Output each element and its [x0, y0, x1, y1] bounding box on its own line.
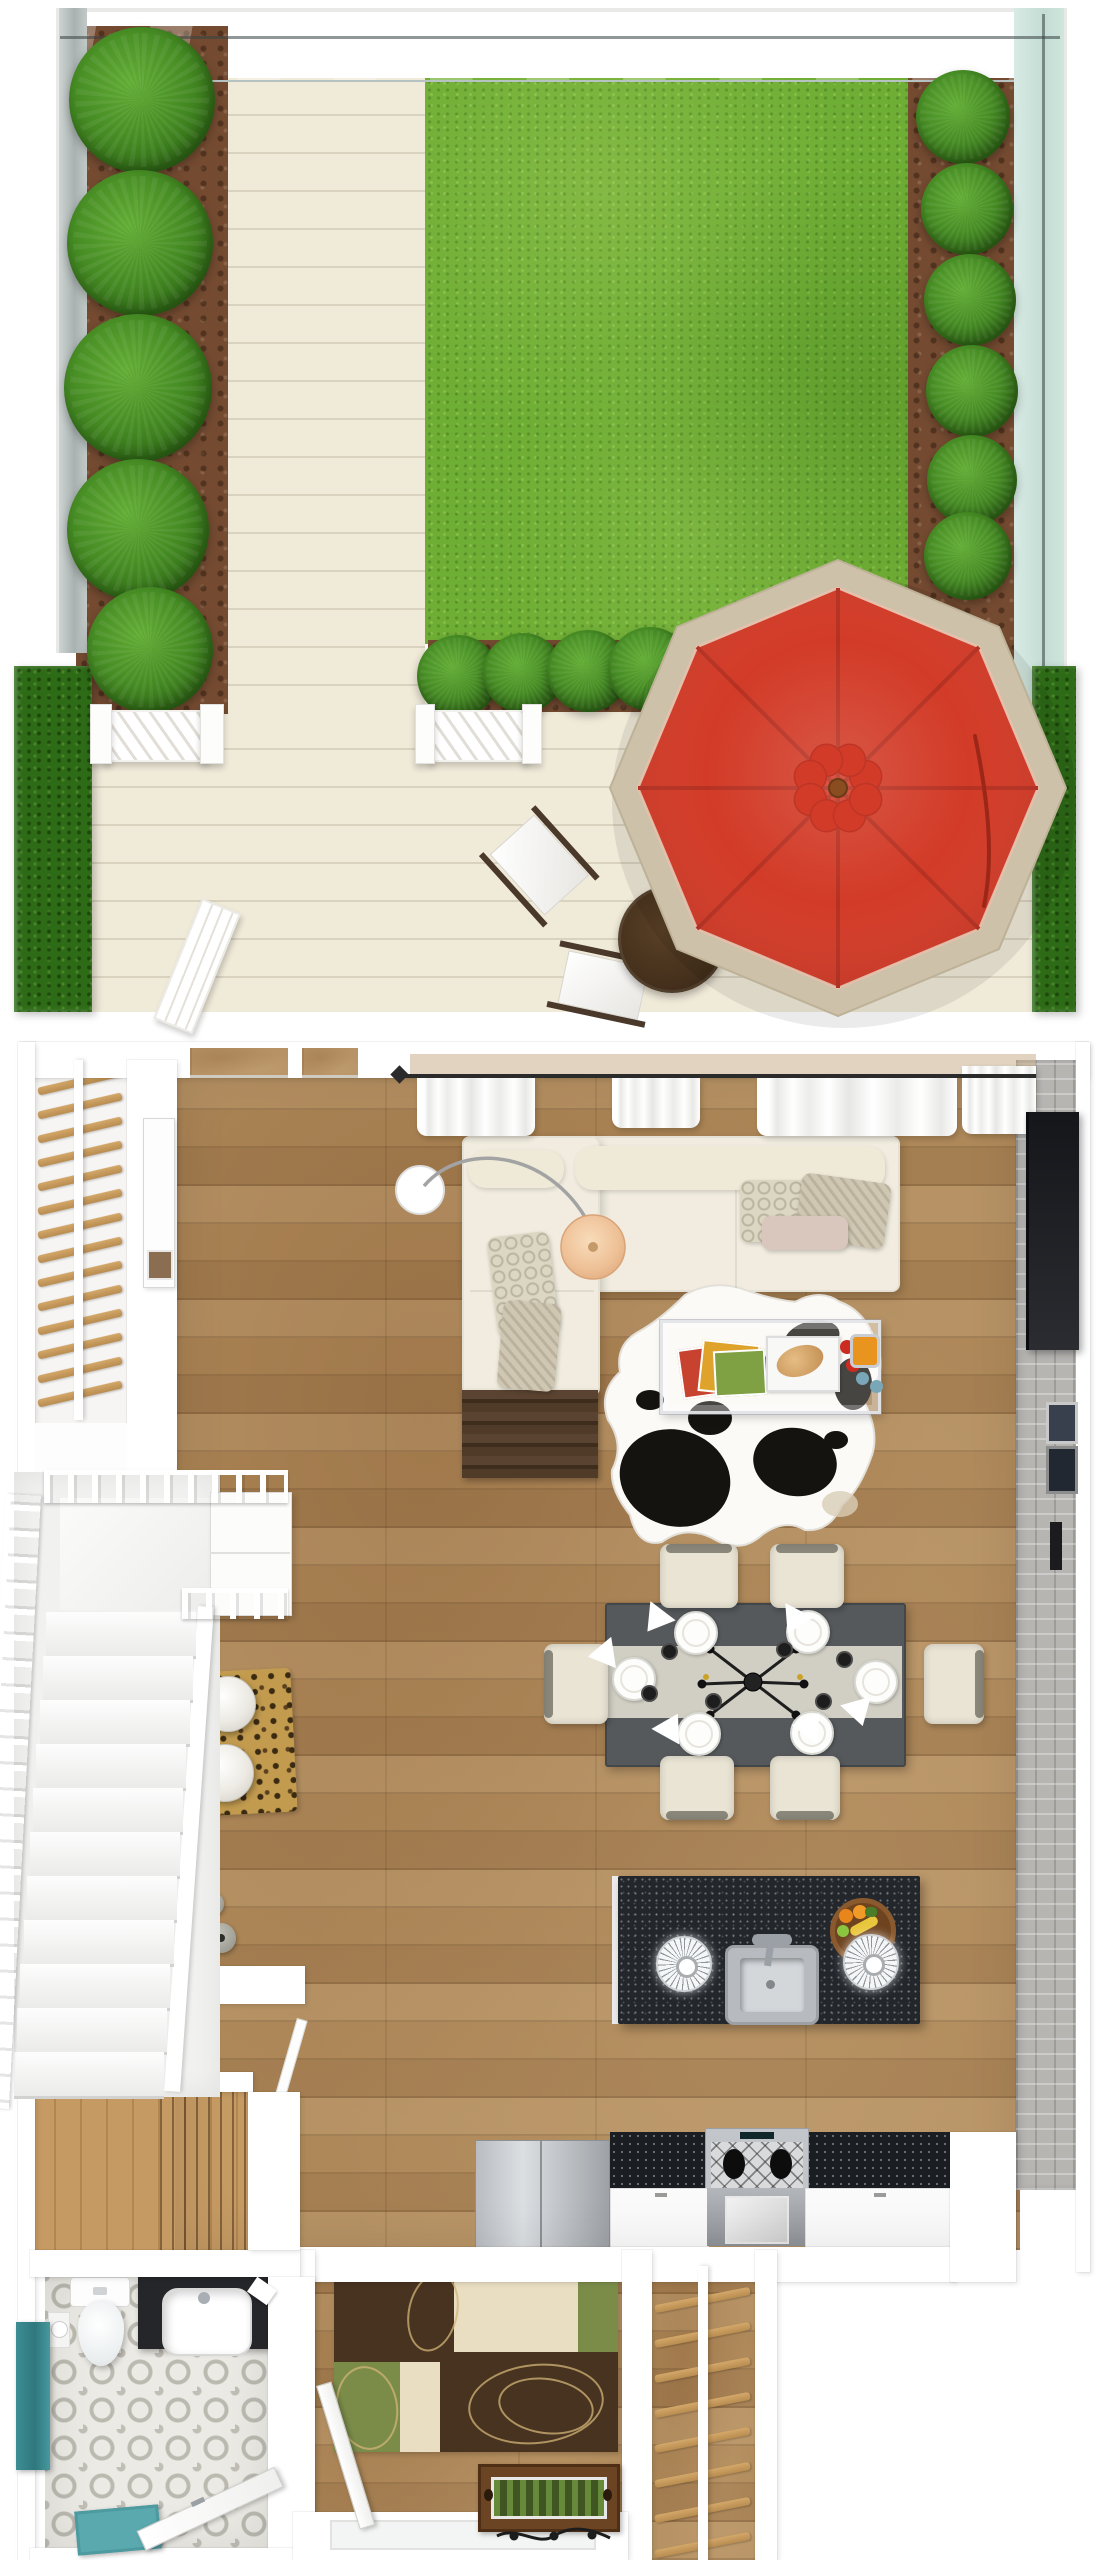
- dinner-plate: [674, 1611, 718, 1655]
- black-cup: [705, 1693, 722, 1710]
- curtain: [612, 1078, 700, 1128]
- shelf-items: [147, 1250, 173, 1280]
- black-cup: [815, 1693, 832, 1710]
- floor-plan-canvas: [0, 0, 1108, 2560]
- throw-pillow: [496, 1300, 561, 1393]
- umbrella-hub: [829, 779, 847, 797]
- toilet-paper-holder: [48, 2312, 70, 2348]
- patio-umbrella: [0, 0, 1108, 1040]
- black-cup: [641, 1685, 658, 1702]
- oven-front: [707, 2188, 805, 2246]
- stair-step: [40, 1700, 190, 1747]
- gas-stove: [705, 2128, 809, 2192]
- stair-railing-top: [44, 1470, 288, 1503]
- picture-frame: [1046, 1446, 1078, 1494]
- black-cup: [836, 1651, 853, 1668]
- sink-faucet: [198, 2292, 210, 2304]
- stair-step: [14, 2052, 164, 2099]
- stair-step: [20, 1964, 170, 2011]
- arc-floor-lamp: [380, 1130, 630, 1300]
- countertop-left: [610, 2132, 707, 2188]
- stair-step: [27, 1876, 177, 1923]
- cabinet-front: [610, 2188, 709, 2248]
- blue-cup: [870, 1380, 883, 1393]
- lower-stair-stringer: [698, 2266, 708, 2560]
- throw-pillow: [762, 1216, 848, 1250]
- curtain: [757, 1078, 957, 1136]
- wall-shaft-right: [755, 2250, 777, 2560]
- stair-step: [17, 2008, 167, 2055]
- stair-step: [30, 1832, 180, 1879]
- pendant-lamp: [656, 1936, 712, 1992]
- dining-chair: [924, 1644, 984, 1724]
- stair-step: [33, 1788, 183, 1835]
- iron-candle-decor: [492, 2520, 616, 2552]
- dining-chair: [660, 1544, 738, 1608]
- lamp-arm: [424, 1158, 592, 1230]
- countertop-right: [805, 2132, 952, 2188]
- closet-slat-gaps: [150, 2092, 248, 2250]
- sink-drain: [766, 1980, 775, 1989]
- dining-chair: [660, 1756, 734, 1820]
- wood-side-table: [462, 1390, 598, 1478]
- wall-bathroom-top: [30, 2250, 300, 2277]
- wall-closet-right: [248, 2092, 300, 2250]
- wall-bathroom-bottom: [30, 2548, 300, 2560]
- cabinet-divider: [210, 1552, 290, 1554]
- stair-step: [24, 1920, 174, 1967]
- curtain-rod: [402, 1074, 1036, 1078]
- dining-chair: [770, 1756, 840, 1820]
- stair-railing-mid: [182, 1588, 288, 1619]
- stair-step: [46, 1612, 196, 1659]
- upper-stair-stringer: [74, 1060, 83, 1420]
- speaker-bar: [1050, 1522, 1062, 1570]
- dinner-plate: [677, 1712, 721, 1756]
- stair-step: [43, 1656, 193, 1703]
- deck-door-opening: [297, 1048, 363, 1078]
- dining-chair: [770, 1544, 844, 1608]
- burner: [770, 2149, 792, 2179]
- juice-pitcher: [850, 1334, 880, 1368]
- deck-door-opening: [185, 1048, 293, 1078]
- black-cup: [661, 1643, 678, 1660]
- cabinet-front: [805, 2188, 954, 2248]
- wall-kitchen-right: [950, 2132, 1016, 2282]
- picture-frame: [1046, 1402, 1078, 1444]
- burner: [723, 2149, 745, 2179]
- fridge-top: [475, 2140, 610, 2250]
- blue-cup: [856, 1372, 869, 1385]
- pendant-lamp: [843, 1934, 899, 1990]
- magazines: [680, 1342, 762, 1396]
- black-cup: [776, 1641, 793, 1658]
- hanging-towel: [16, 2322, 50, 2470]
- curtain: [417, 1078, 535, 1136]
- tv-screen: [1026, 1112, 1079, 1350]
- dinner-plate: [854, 1660, 898, 1704]
- stair-step: [36, 1744, 186, 1791]
